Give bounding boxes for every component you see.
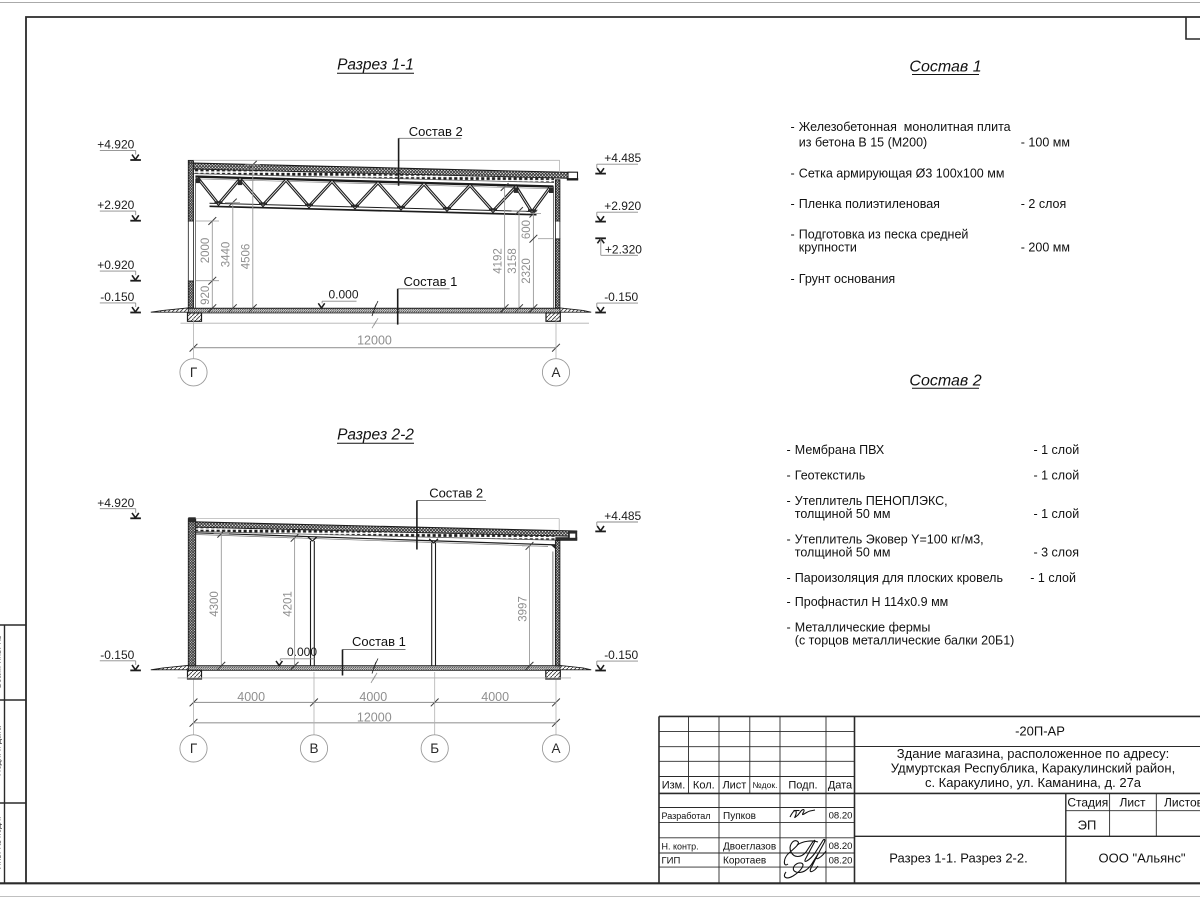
svg-text:ГИП: ГИП	[662, 856, 681, 867]
svg-text:-: -	[787, 533, 791, 547]
svg-text:12000: 12000	[357, 710, 392, 724]
svg-text:Состав 2: Состав 2	[909, 372, 981, 389]
svg-text:- 200 мм: - 200 мм	[1021, 241, 1070, 255]
svg-text:Лист: Лист	[1119, 795, 1146, 809]
svg-text:- 1 слой: - 1 слой	[1034, 469, 1080, 483]
svg-text:-0.150: -0.150	[604, 648, 638, 662]
svg-text:Лист: Лист	[722, 780, 746, 792]
svg-text:+4.920: +4.920	[97, 138, 134, 152]
svg-text:- 100 мм: - 100 мм	[1021, 136, 1070, 150]
svg-text:- 1 слой: - 1 слой	[1034, 443, 1080, 457]
svg-text:08.20: 08.20	[829, 810, 853, 821]
svg-text:Состав 2: Состав 2	[409, 124, 463, 139]
svg-text:3997: 3997	[517, 596, 529, 622]
svg-text:- 2 слоя: - 2 слоя	[1021, 197, 1066, 211]
svg-text:3158: 3158	[507, 248, 519, 274]
svg-text:крупности: крупности	[799, 241, 857, 255]
svg-text:3440: 3440	[221, 242, 233, 268]
svg-text:толщиной 50 мм: толщиной 50 мм	[795, 507, 891, 521]
svg-text:2000: 2000	[200, 238, 212, 264]
svg-text:- 1 слой: - 1 слой	[1030, 571, 1076, 585]
svg-text:- 3 слоя: - 3 слоя	[1034, 546, 1079, 560]
svg-text:Состав 1: Состав 1	[404, 274, 458, 289]
svg-text:-0.150: -0.150	[100, 290, 134, 304]
svg-text:+2.920: +2.920	[97, 198, 134, 212]
svg-text:4300: 4300	[209, 591, 221, 617]
svg-text:Листов: Листов	[1164, 795, 1200, 809]
svg-text:920: 920	[200, 286, 212, 305]
svg-text:08.20: 08.20	[829, 841, 853, 852]
svg-text:толщиной 50 мм: толщиной 50 мм	[795, 546, 891, 560]
svg-text:-: -	[787, 494, 791, 508]
svg-text:В: В	[309, 741, 318, 756]
svg-text:4506: 4506	[241, 244, 253, 270]
svg-text:-: -	[787, 469, 791, 483]
svg-text:Г: Г	[190, 365, 198, 380]
svg-text:Б: Б	[430, 741, 439, 756]
svg-text:Дата: Дата	[828, 780, 853, 792]
svg-text:Разрез 2-2: Разрез 2-2	[337, 427, 414, 444]
svg-text:ЭП: ЭП	[1078, 818, 1097, 833]
svg-text:4000: 4000	[359, 690, 387, 704]
svg-text:Г: Г	[190, 741, 198, 756]
svg-text:4000: 4000	[237, 690, 265, 704]
svg-text:Утеплитель ПЕНОПЛЭКС,: Утеплитель ПЕНОПЛЭКС,	[795, 494, 948, 508]
svg-text:Двоеглазов: Двоеглазов	[723, 841, 776, 852]
svg-text:0.000: 0.000	[329, 287, 359, 301]
svg-text:+2.920: +2.920	[604, 199, 641, 213]
svg-text:Подп. и дата: Подп. и дата	[0, 726, 3, 776]
svg-text:-0.150: -0.150	[100, 648, 134, 662]
svg-text:Пароизоляция для плоских крове: Пароизоляция для плоских кровель	[795, 571, 1003, 585]
svg-text:№док.: №док.	[753, 780, 778, 790]
svg-text:Разрез 1-1: Разрез 1-1	[337, 57, 414, 74]
svg-text:-: -	[791, 197, 795, 211]
svg-text:-20П-АР: -20П-АР	[1015, 723, 1065, 738]
svg-text:А: А	[551, 741, 560, 756]
svg-text:А: А	[551, 365, 560, 380]
svg-text:+0.920: +0.920	[97, 258, 134, 272]
svg-text:ООО "Альянс": ООО "Альянс"	[1099, 850, 1186, 865]
svg-text:0.000: 0.000	[287, 645, 317, 659]
svg-text:Разрез 1-1. Разрез 2-2.: Разрез 1-1. Разрез 2-2.	[889, 850, 1027, 865]
svg-text:4201: 4201	[282, 591, 294, 617]
svg-text:Инв. № подл.: Инв. № подл.	[0, 817, 3, 870]
svg-text:Изм.: Изм.	[662, 780, 686, 792]
svg-text:-: -	[791, 272, 795, 286]
svg-text:Профнастил Н 114х0.9 мм: Профнастил Н 114х0.9 мм	[795, 595, 948, 609]
svg-text:-: -	[787, 443, 791, 457]
svg-text:Геотекстиль: Геотекстиль	[795, 469, 865, 483]
svg-text:Пленка полиэтиленовая: Пленка полиэтиленовая	[799, 197, 940, 211]
svg-text:Подготовка из песка средней: Подготовка из песка средней	[799, 228, 969, 242]
svg-text:+2.320: +2.320	[605, 242, 642, 256]
svg-text:Состав 2: Состав 2	[429, 486, 483, 501]
svg-text:+4.920: +4.920	[97, 496, 134, 510]
svg-text:Стадия: Стадия	[1067, 795, 1108, 809]
svg-text:-0.150: -0.150	[604, 290, 638, 304]
svg-text:-: -	[787, 621, 791, 635]
svg-text:Состав 1: Состав 1	[909, 59, 981, 76]
svg-text:-: -	[787, 595, 791, 609]
svg-text:-: -	[787, 571, 791, 585]
svg-text:+4.485: +4.485	[604, 509, 641, 523]
svg-text:с. Каракулино, ул. Каманина, д: с. Каракулино, ул. Каманина, д. 27а	[925, 775, 1142, 790]
svg-text:Сетка армирующая Ø3 100х100 мм: Сетка армирующая Ø3 100х100 мм	[799, 167, 1005, 181]
svg-text:-: -	[791, 228, 795, 242]
svg-text:- 1 слой: - 1 слой	[1034, 507, 1080, 521]
svg-text:Пупков: Пупков	[723, 811, 756, 822]
svg-text:Кол.: Кол.	[693, 780, 715, 792]
svg-text:600: 600	[521, 220, 533, 239]
svg-text:4192: 4192	[492, 248, 504, 274]
svg-text:4000: 4000	[481, 690, 509, 704]
svg-text:12000: 12000	[357, 333, 392, 347]
svg-text:Грунт основания: Грунт основания	[799, 272, 895, 286]
svg-text:Коротаев: Коротаев	[723, 856, 766, 867]
svg-text:(с торцов металлические балки: (с торцов металлические балки 20Б1)	[795, 634, 1015, 648]
svg-text:Железобетонная монолитная пли: Железобетонная монолитная плита	[799, 120, 1011, 134]
svg-text:Удмуртская Республика, Каракул: Удмуртская Республика, Каракулинский рай…	[891, 761, 1175, 776]
svg-text:08.20: 08.20	[829, 855, 853, 866]
svg-text:Н. контр.: Н. контр.	[662, 841, 699, 851]
svg-text:Состав 1: Состав 1	[352, 634, 406, 649]
svg-text:Взам. инв. №: Взам. инв. №	[0, 636, 3, 689]
svg-text:из бетона В 15 (М200): из бетона В 15 (М200)	[799, 136, 927, 150]
svg-text:+4.485: +4.485	[604, 151, 641, 165]
svg-text:Здание магазина, расположенное: Здание магазина, расположенное по адресу…	[897, 746, 1169, 761]
svg-text:Разработал: Разработал	[662, 811, 711, 821]
svg-text:Мембрана ПВХ: Мембрана ПВХ	[795, 443, 885, 457]
svg-text:-: -	[791, 167, 795, 181]
svg-text:Подп.: Подп.	[788, 780, 817, 792]
svg-text:2320: 2320	[521, 258, 533, 284]
svg-text:-: -	[791, 120, 795, 134]
